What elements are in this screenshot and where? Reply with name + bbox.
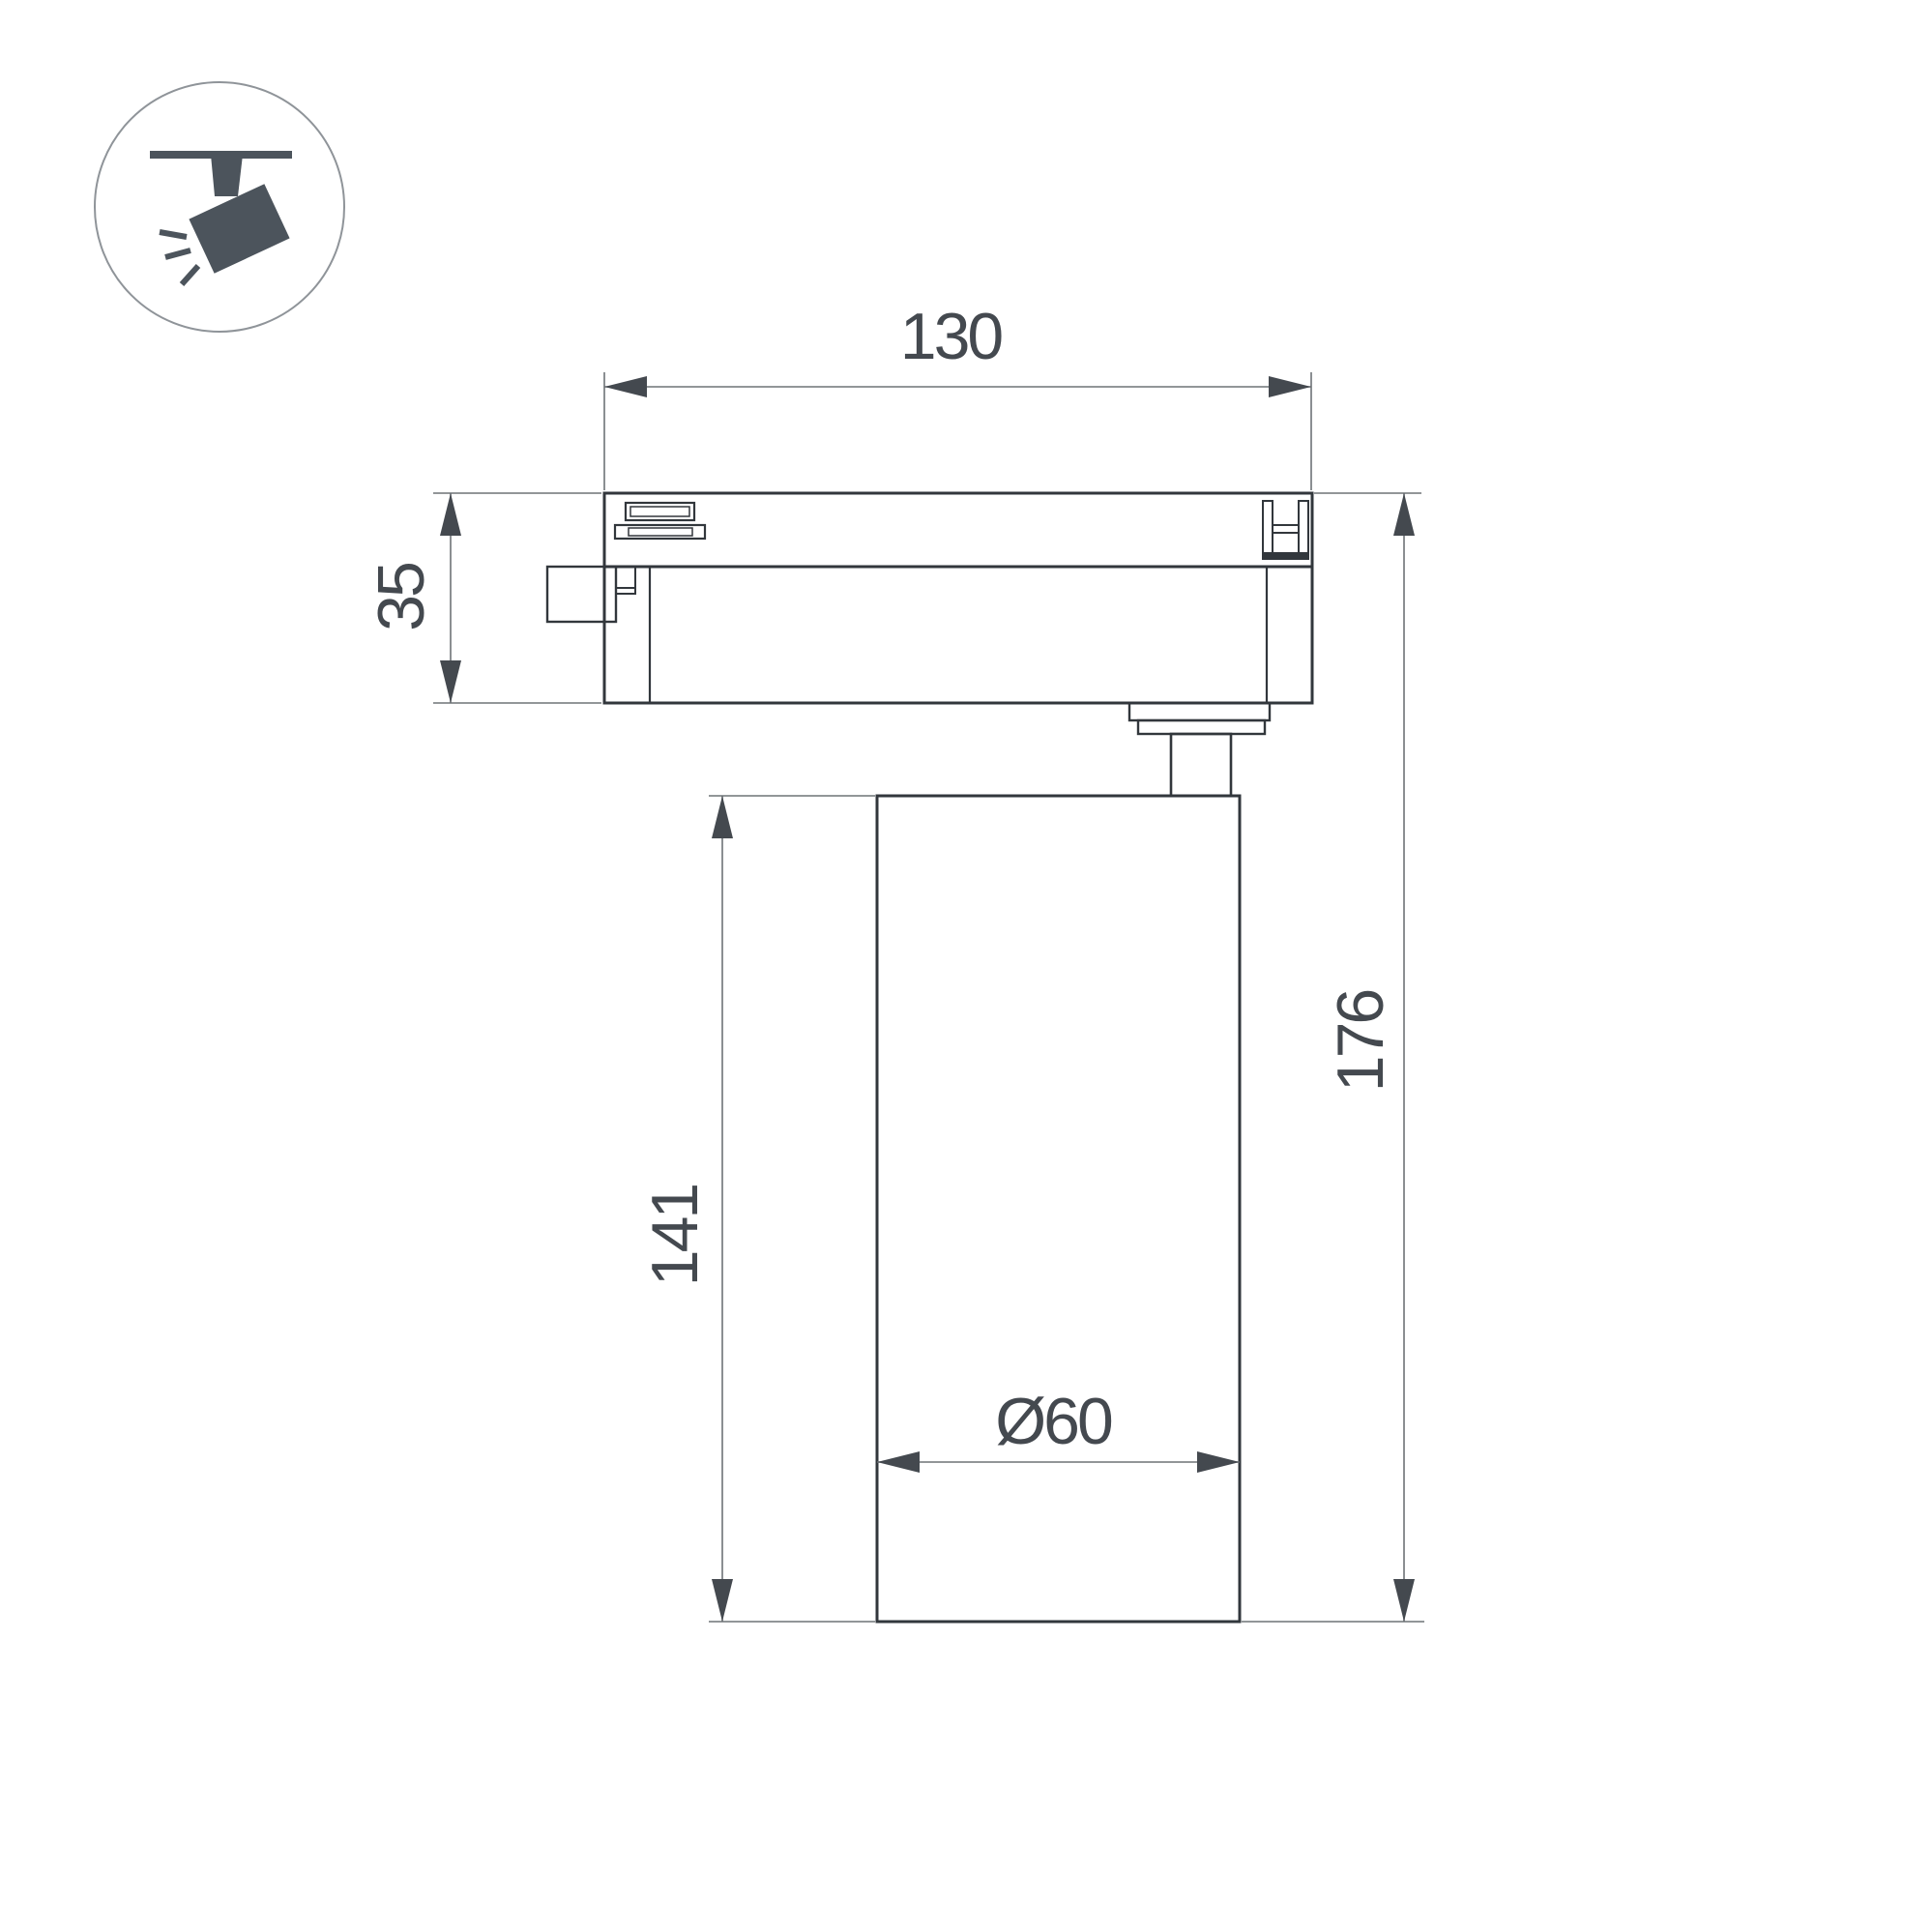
pivot-flange-upper <box>1129 703 1270 720</box>
contact-clip-1 <box>626 503 694 520</box>
dimension-labels: 130 35 141 176 Ø60 <box>365 300 1397 1458</box>
track-adapter-lower <box>604 567 1312 703</box>
pivot-flange-lower <box>1138 720 1265 734</box>
arrow-141-down <box>712 1579 733 1622</box>
arrow-35-down <box>440 660 461 703</box>
arrow-176-down <box>1393 1579 1415 1622</box>
pivot-neck <box>1171 734 1231 796</box>
arrow-60-left <box>877 1451 920 1473</box>
dimension-arrows <box>440 376 1415 1622</box>
label-body-diameter: Ø60 <box>995 1385 1112 1458</box>
contact-clip-2-inner <box>629 528 692 536</box>
right-clip-base <box>1263 552 1308 560</box>
label-total-height: 176 <box>1324 991 1397 1093</box>
right-clip-left-bar <box>1263 501 1273 559</box>
lever-step <box>616 567 635 588</box>
lever-step-bar <box>616 588 635 594</box>
drawing-canvas: 130 35 141 176 Ø60 <box>0 0 1932 1932</box>
arrow-130-right <box>1269 376 1311 397</box>
arrow-60-right <box>1197 1451 1240 1473</box>
arrow-130-left <box>604 376 647 397</box>
track-adapter-upper <box>604 493 1312 567</box>
right-clip <box>1263 501 1308 560</box>
right-clip-rung <box>1273 525 1299 533</box>
icon-stem <box>211 155 243 196</box>
arrow-141-up <box>712 796 733 838</box>
arrow-176-up <box>1393 493 1415 536</box>
contact-clip-1-inner <box>630 507 689 516</box>
label-track-width: 130 <box>900 300 1003 373</box>
label-body-height: 141 <box>638 1186 712 1287</box>
label-track-height: 35 <box>365 564 438 631</box>
lamp-body <box>877 796 1240 1622</box>
corner-icon <box>95 82 344 332</box>
arrow-35-up <box>440 493 461 536</box>
right-clip-right-bar <box>1299 501 1308 559</box>
